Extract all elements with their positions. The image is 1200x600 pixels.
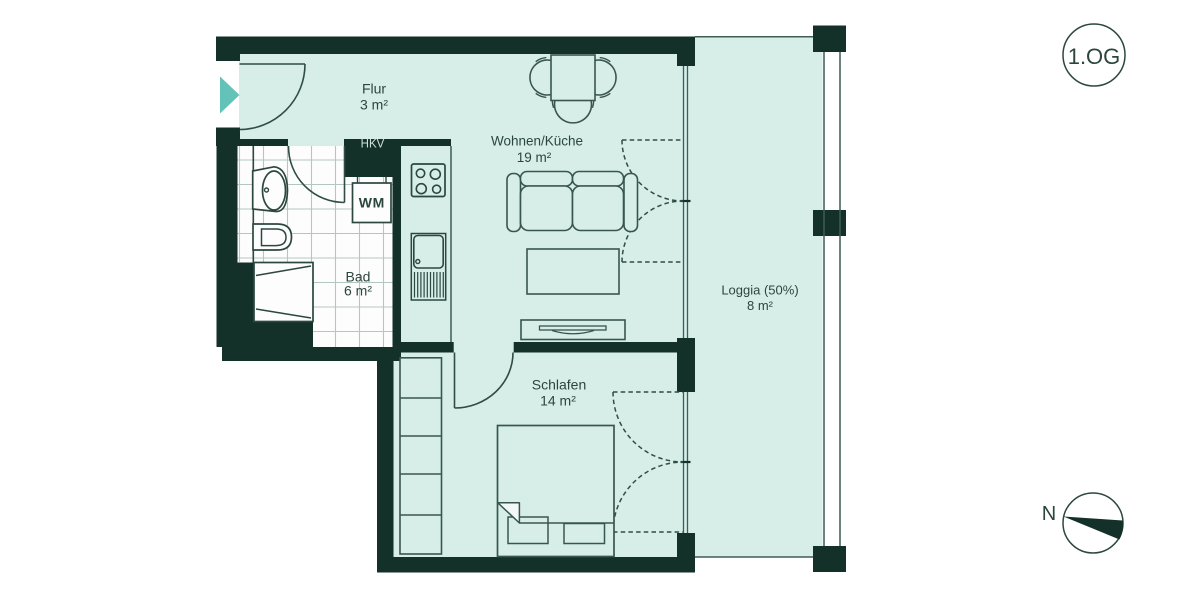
svg-text:WM: WM: [359, 195, 385, 211]
svg-text:6 m²: 6 m²: [344, 283, 372, 299]
svg-text:14 m²: 14 m²: [540, 393, 576, 409]
svg-text:Flur: Flur: [362, 81, 386, 97]
svg-text:8 m²: 8 m²: [747, 298, 774, 313]
svg-text:HKV: HKV: [361, 139, 385, 151]
svg-text:3 m²: 3 m²: [360, 97, 388, 113]
svg-text:Loggia (50%): Loggia (50%): [721, 283, 798, 298]
svg-text:N: N: [1042, 503, 1056, 525]
svg-text:Wohnen/Küche: Wohnen/Küche: [491, 134, 583, 149]
svg-text:Schlafen: Schlafen: [532, 377, 586, 393]
svg-text:19 m²: 19 m²: [517, 150, 552, 165]
svg-text:1.OG: 1.OG: [1068, 44, 1121, 69]
